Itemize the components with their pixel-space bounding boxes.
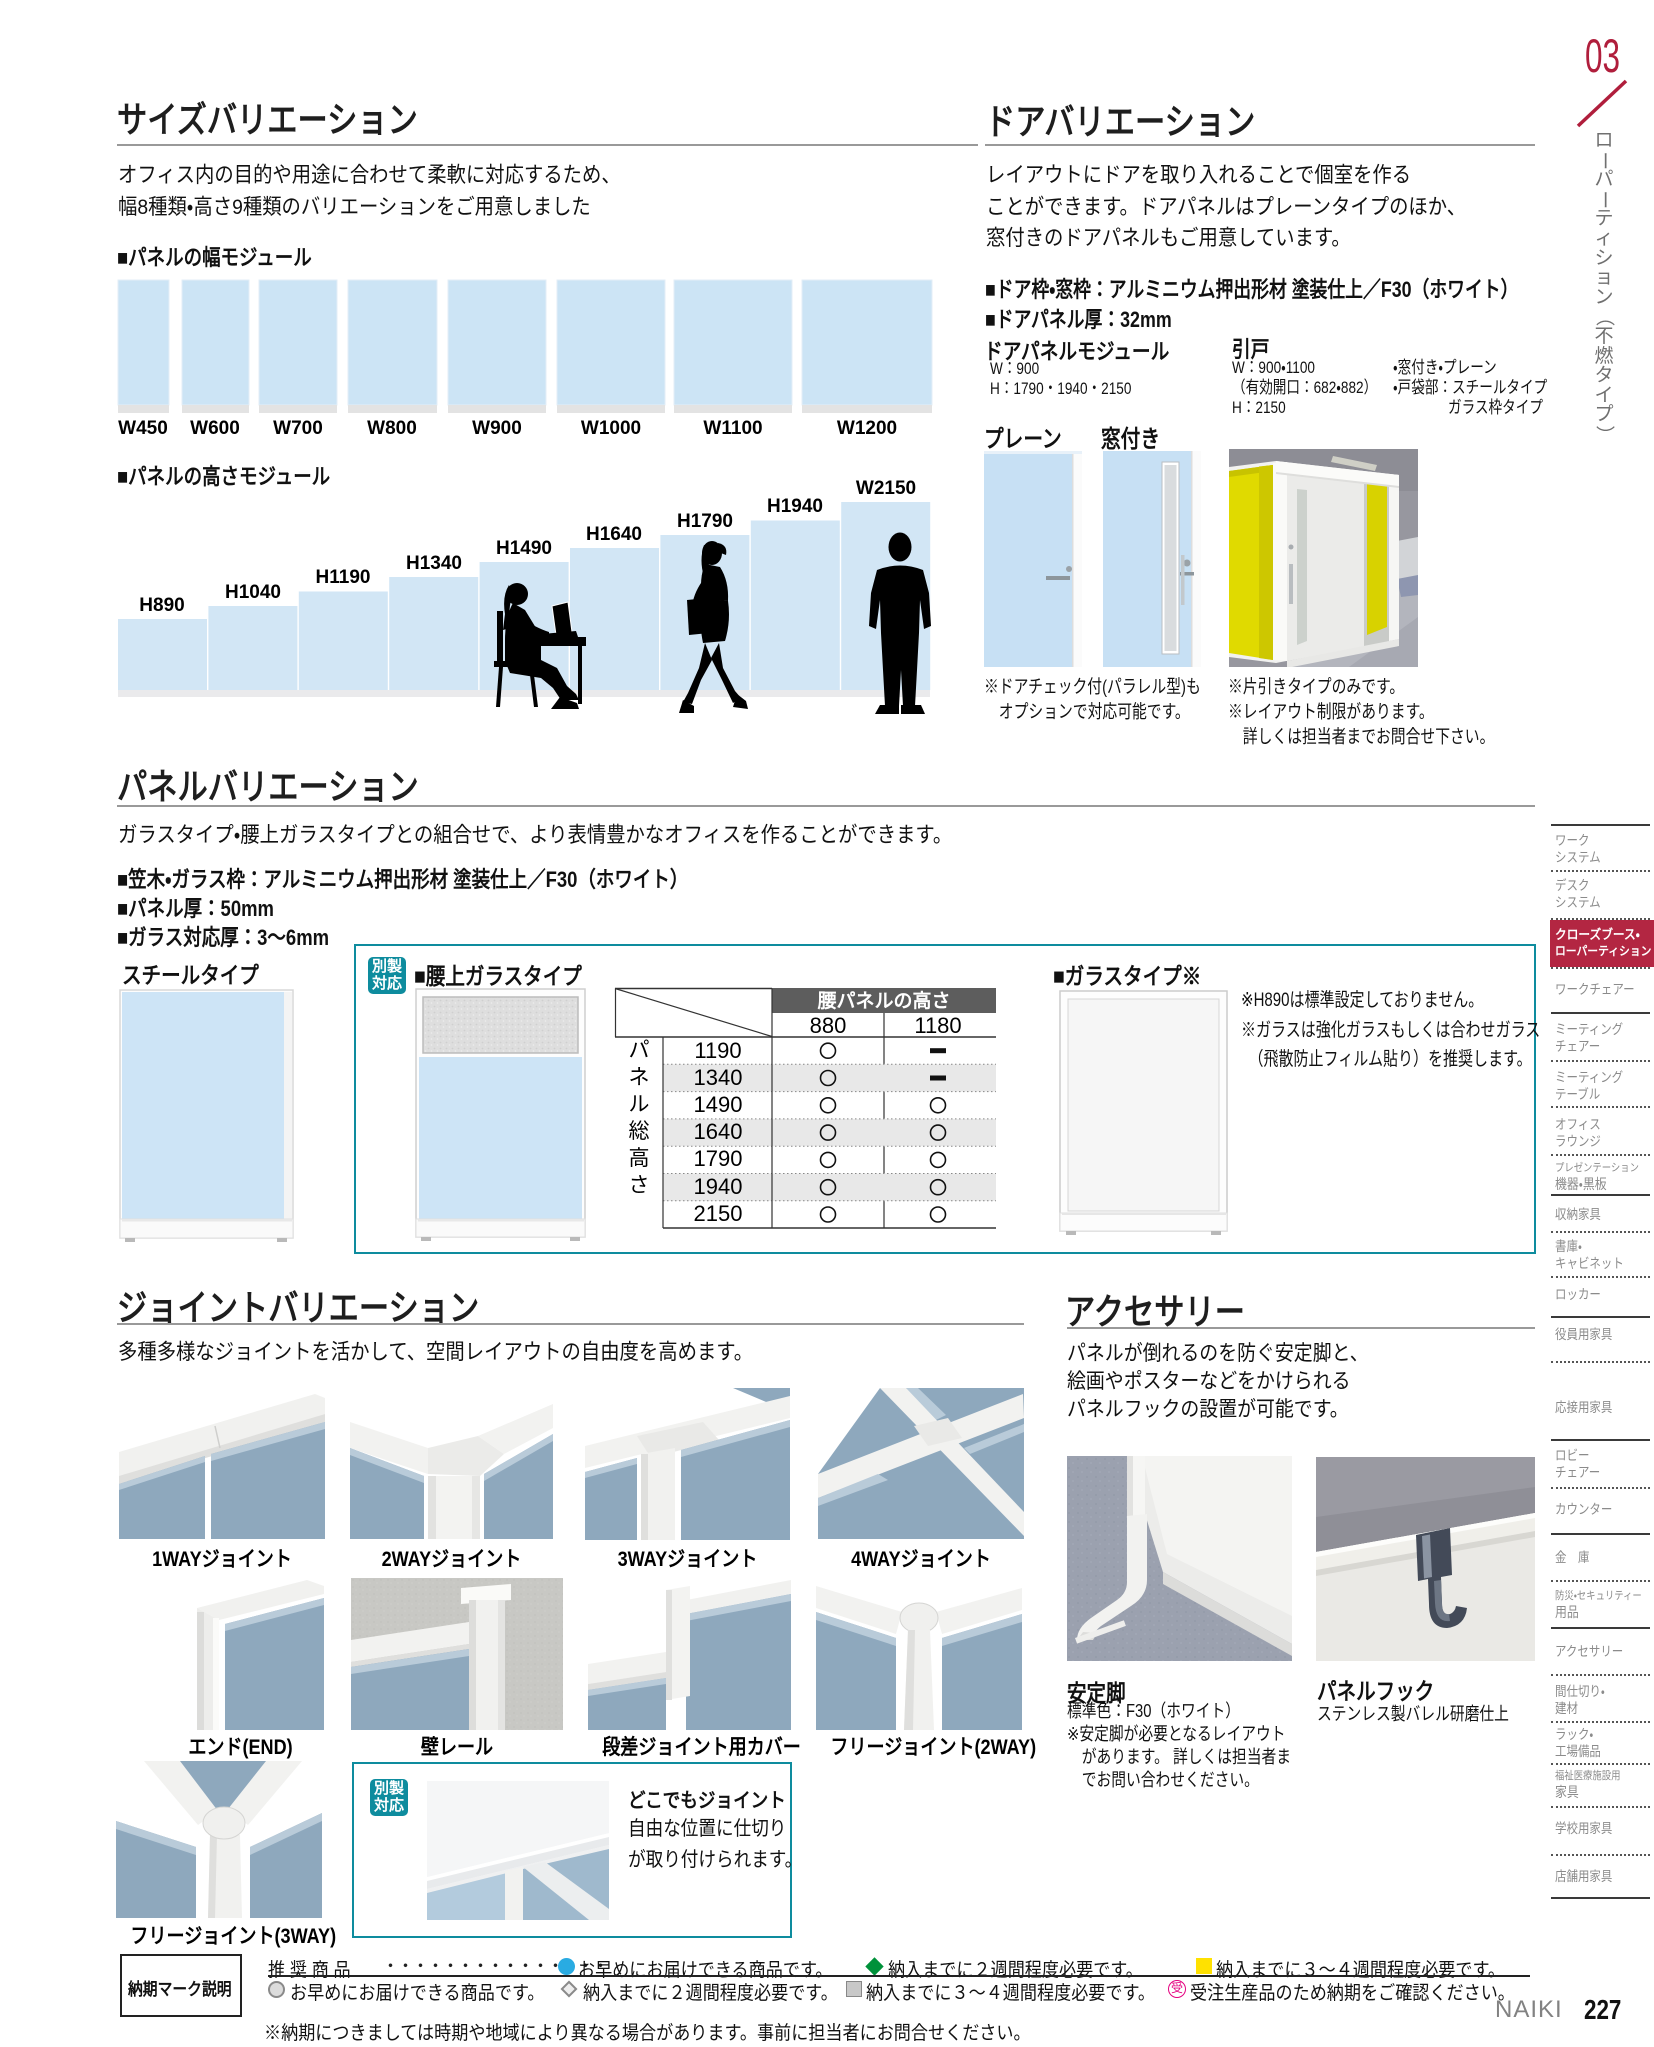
- svg-text:H890: H890: [139, 595, 184, 616]
- svg-text:パ: パ: [629, 1039, 650, 1062]
- svg-text:1940: 1940: [694, 1174, 743, 1199]
- svg-text:高: 高: [629, 1147, 650, 1170]
- svg-text:H1340: H1340: [406, 553, 462, 574]
- svg-text:H1940: H1940: [767, 496, 823, 517]
- svg-text:880: 880: [810, 1013, 847, 1038]
- svg-text:総: 総: [629, 1120, 650, 1143]
- svg-text:H1490: H1490: [496, 538, 552, 559]
- svg-text:1340: 1340: [694, 1065, 743, 1090]
- svg-text:H1790: H1790: [677, 511, 733, 532]
- svg-text:さ: さ: [629, 1174, 650, 1197]
- svg-text:1180: 1180: [914, 1013, 961, 1038]
- svg-text:ル: ル: [629, 1093, 650, 1116]
- svg-text:1490: 1490: [694, 1092, 743, 1117]
- svg-text:1790: 1790: [694, 1146, 743, 1171]
- svg-text:1190: 1190: [694, 1038, 741, 1063]
- svg-text:H1040: H1040: [225, 582, 281, 603]
- svg-text:2150: 2150: [694, 1201, 743, 1226]
- svg-text:H1640: H1640: [586, 524, 642, 545]
- svg-text:W2150: W2150: [856, 478, 916, 499]
- svg-text:1640: 1640: [694, 1119, 743, 1144]
- svg-text:ネ: ネ: [629, 1066, 650, 1089]
- svg-text:H1190: H1190: [316, 567, 371, 588]
- svg-text:腰パネルの高さ: 腰パネルの高さ: [816, 989, 950, 1012]
